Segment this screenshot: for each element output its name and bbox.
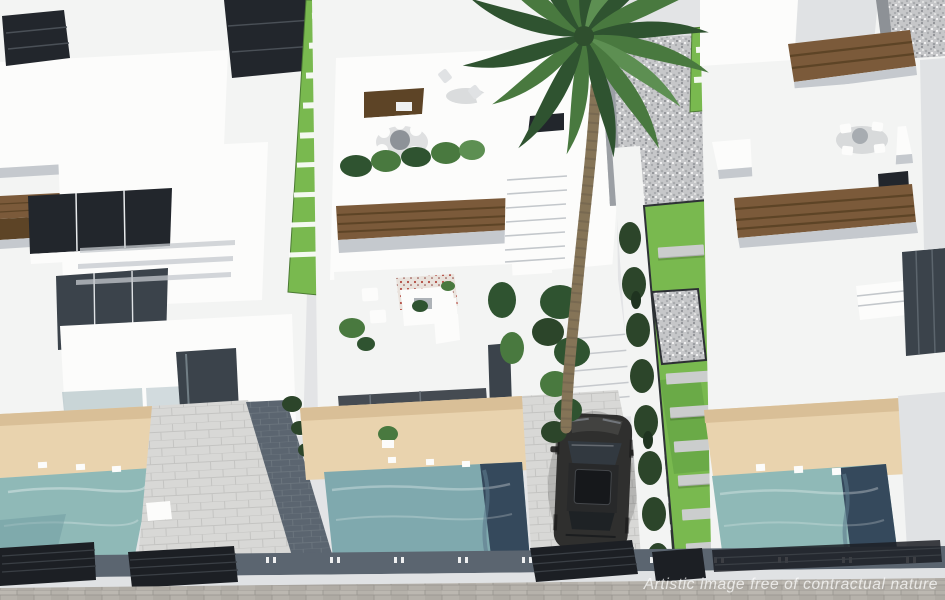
watermark-text: Artistic image free of contractual natur… (643, 576, 938, 593)
render-canvas: Artistic image free of contractual natur… (0, 0, 945, 600)
car-sunroof (574, 469, 611, 505)
trailing-plant (488, 282, 516, 318)
right-window-band (902, 248, 945, 356)
outdoor-kitchen-counter (364, 88, 424, 118)
gravel-inset (652, 289, 706, 364)
solar-panel-top (224, 0, 315, 78)
car-rear-window (568, 511, 615, 531)
roof-stairs (504, 162, 568, 276)
right-roof-furniture (836, 121, 888, 155)
architectural-render: Artistic image free of contractual natur… (0, 0, 945, 600)
left-villa-window (28, 188, 172, 264)
solar-panel-left (2, 10, 70, 66)
